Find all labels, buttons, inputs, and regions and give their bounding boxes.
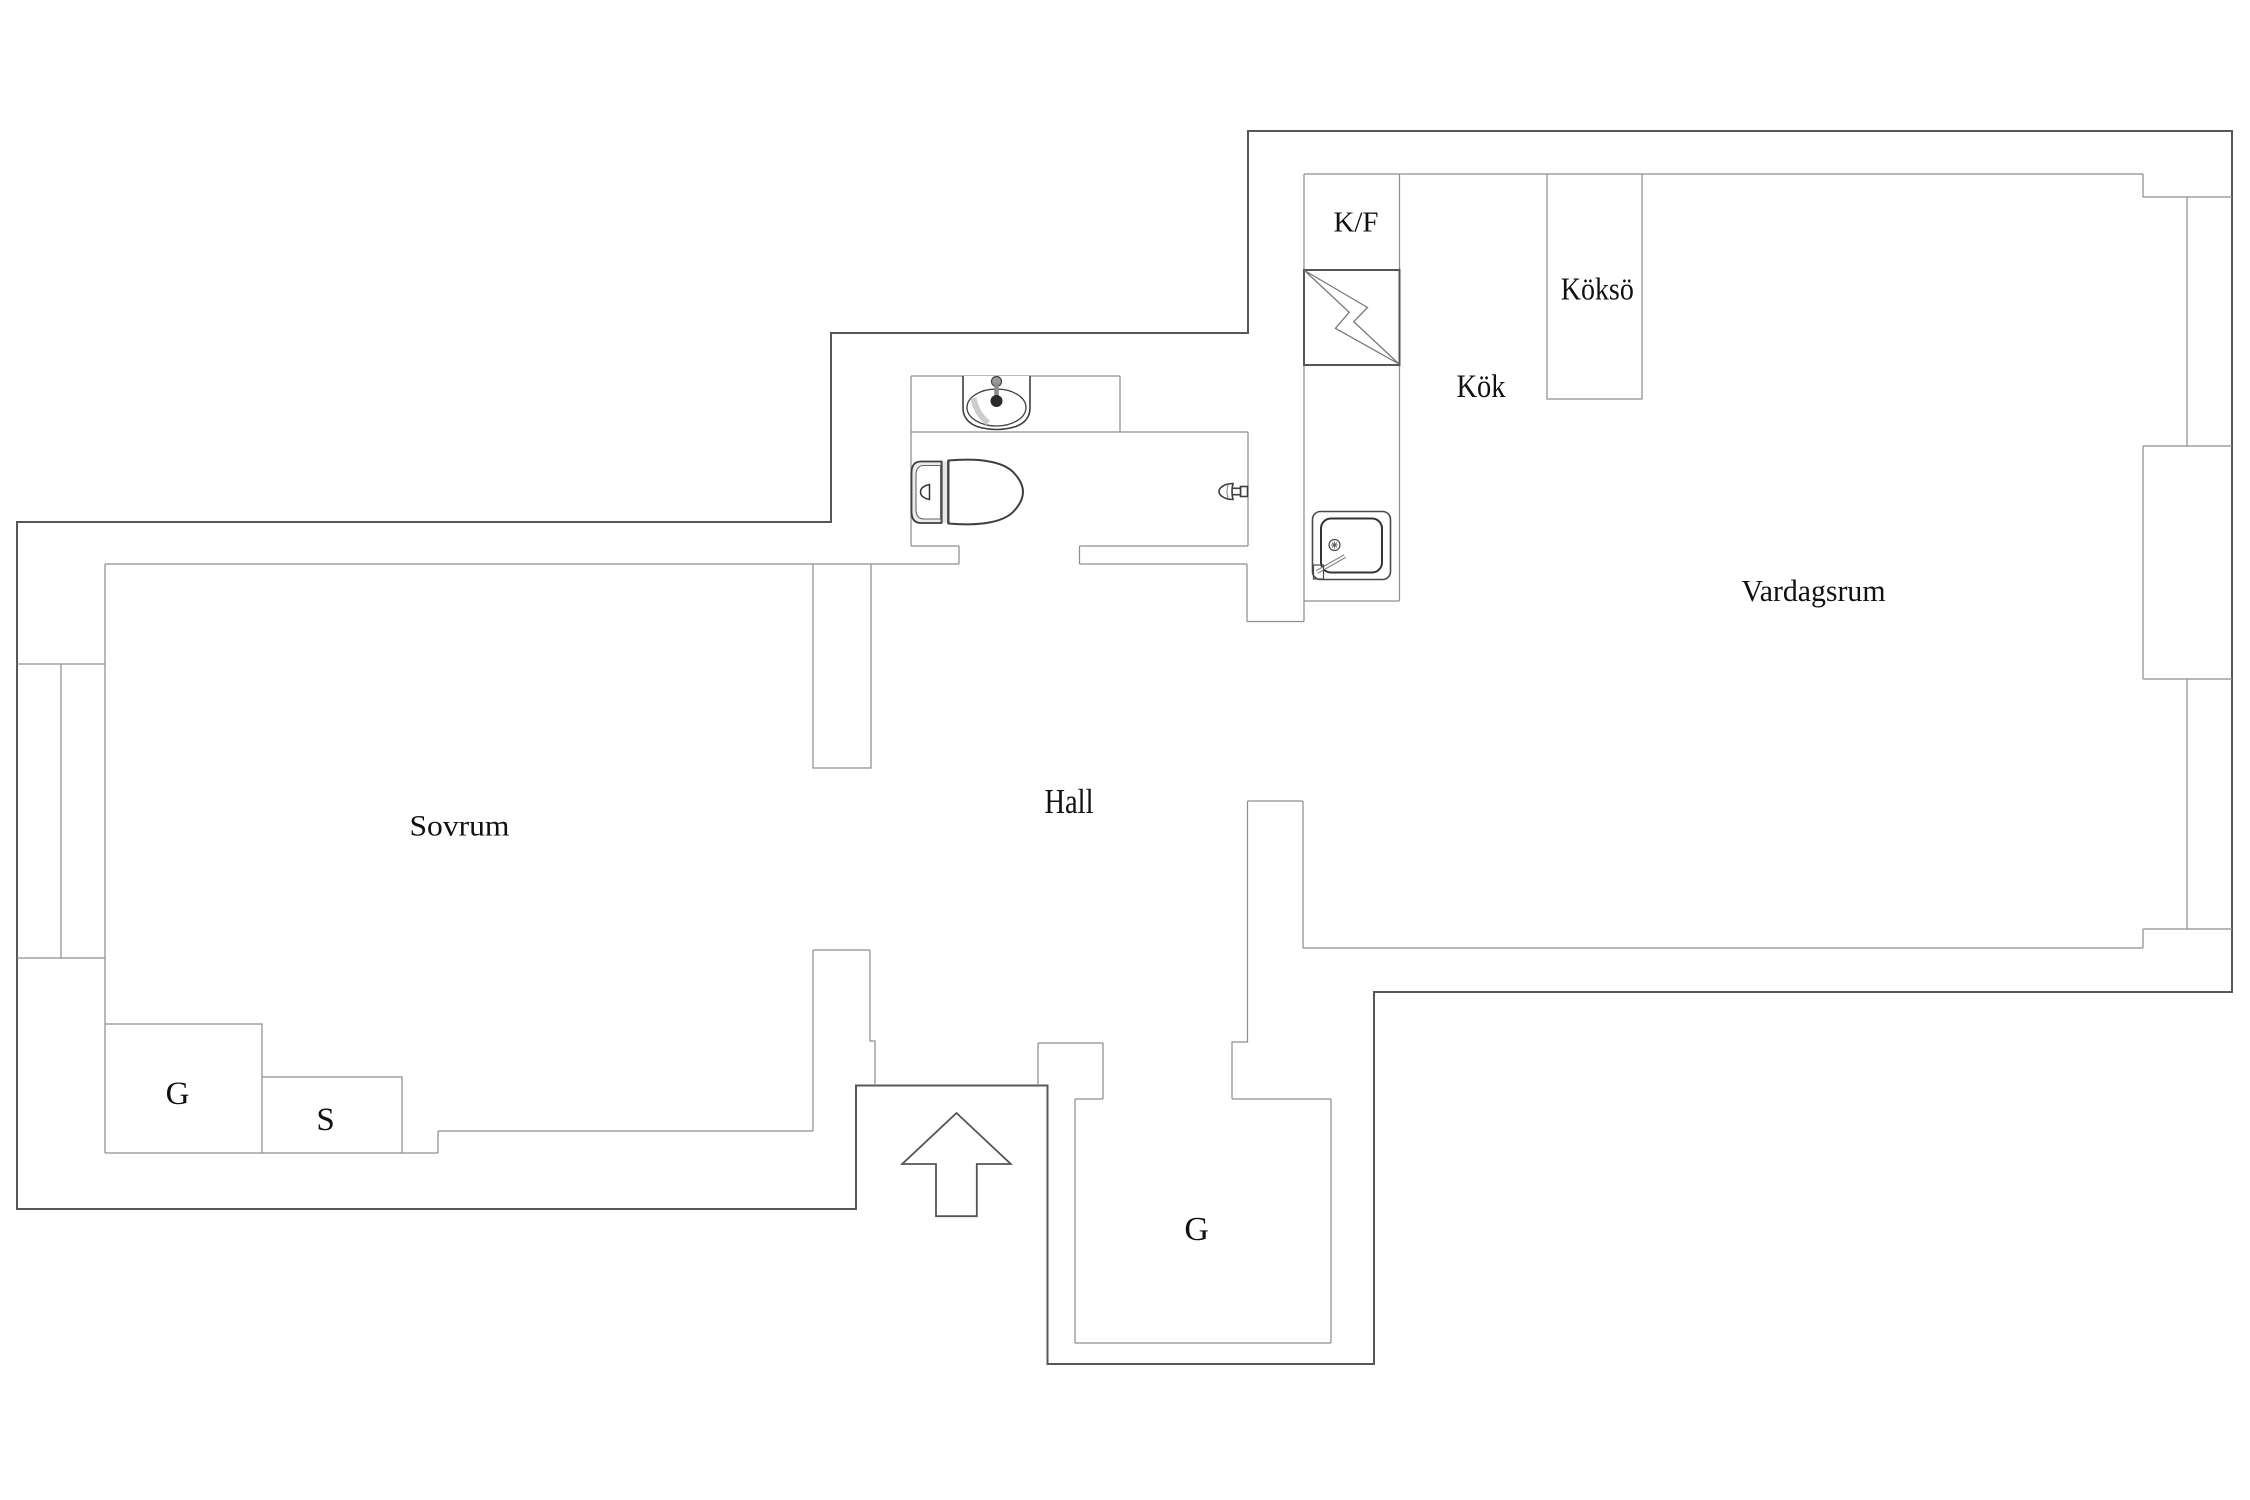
svg-text:Kök: Kök xyxy=(1457,369,1507,405)
svg-text:Sovrum: Sovrum xyxy=(410,810,510,842)
svg-text:Hall: Hall xyxy=(1045,782,1094,821)
svg-text:Vardagsrum: Vardagsrum xyxy=(1742,573,1886,608)
svg-text:K/F: K/F xyxy=(1334,208,1379,239)
svg-text:G: G xyxy=(166,1076,190,1112)
svg-text:G: G xyxy=(1184,1211,1209,1248)
svg-text:Köksö: Köksö xyxy=(1561,271,1634,306)
svg-text:S: S xyxy=(316,1102,334,1138)
